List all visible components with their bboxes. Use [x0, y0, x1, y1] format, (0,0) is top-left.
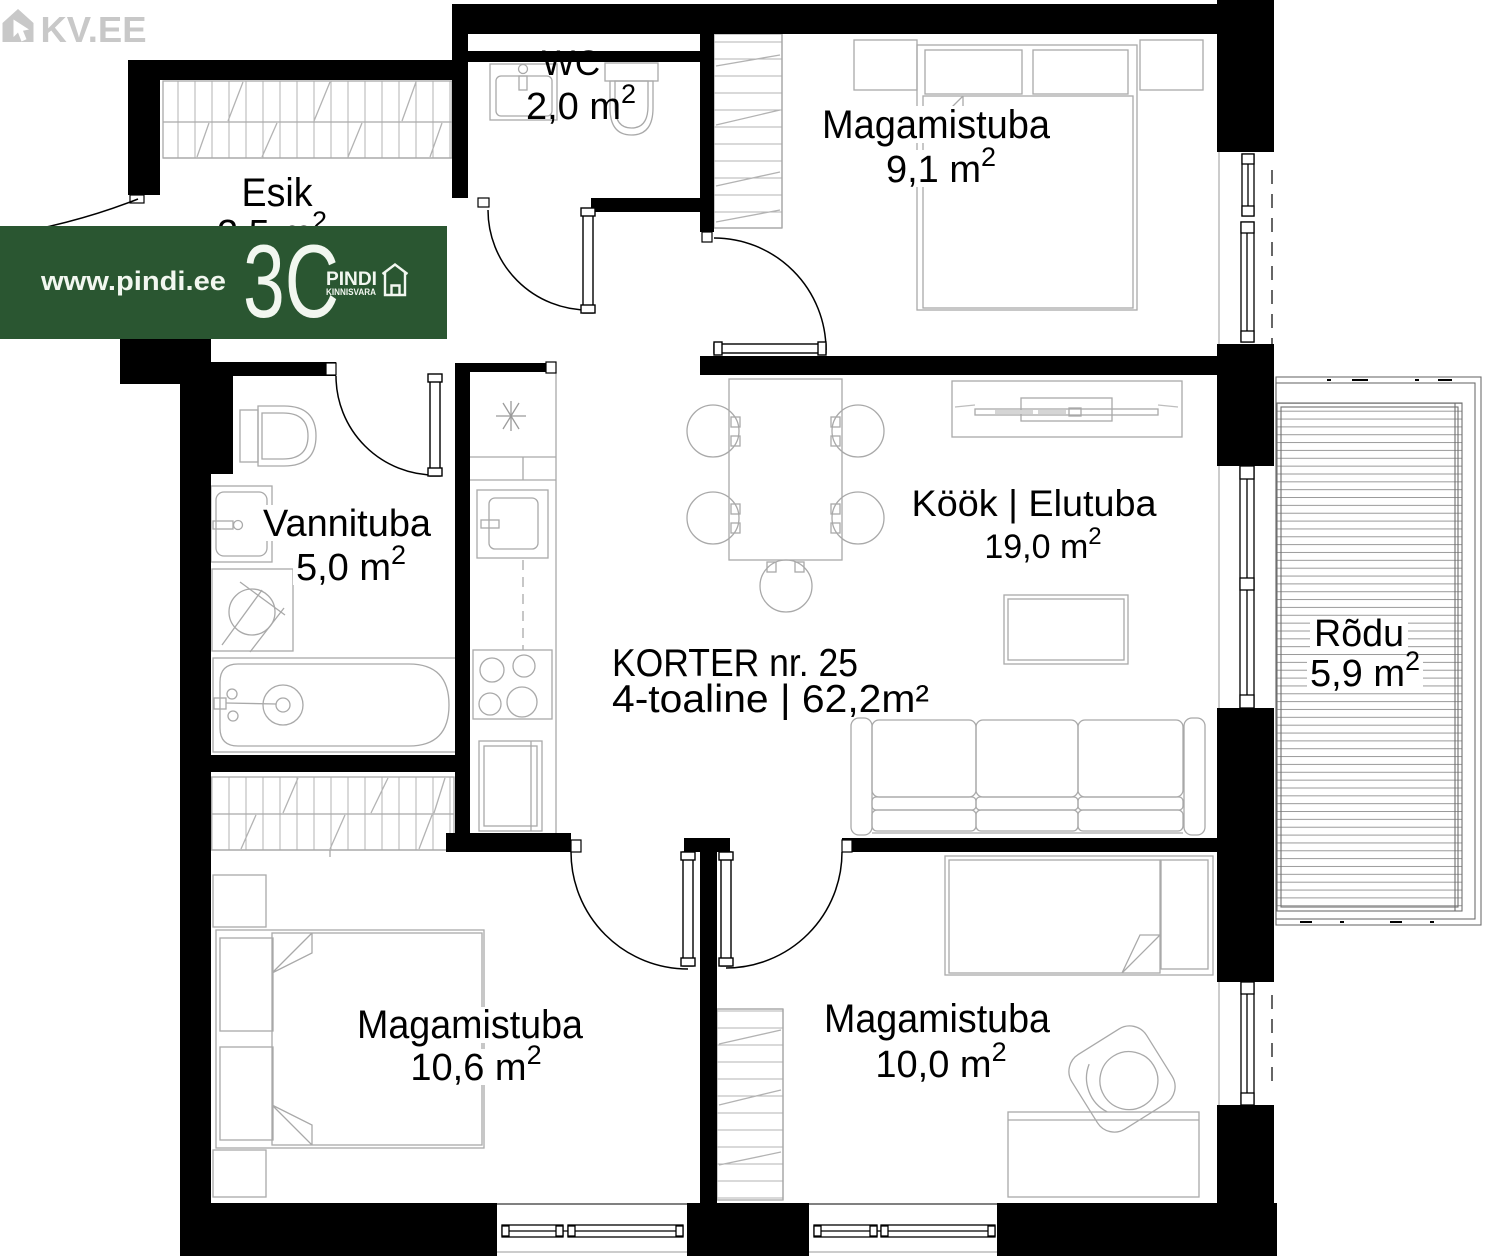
svg-text:Esik: Esik: [242, 171, 314, 215]
svg-text:www.pindi.ee: www.pindi.ee: [40, 266, 226, 296]
svg-text:10,6 m2: 10,6 m2: [410, 1040, 541, 1089]
svg-text:KV.EE: KV.EE: [41, 9, 147, 50]
svg-text:19,0 m2: 19,0 m2: [984, 523, 1101, 566]
svg-text:10,0 m2: 10,0 m2: [875, 1037, 1006, 1086]
svg-text:Magamistuba: Magamistuba: [357, 1003, 584, 1047]
svg-text:Magamistuba: Magamistuba: [822, 103, 1051, 147]
svg-text:9,1 m2: 9,1 m2: [886, 142, 996, 191]
svg-text:WC: WC: [542, 44, 600, 83]
svg-text:3C: 3C: [243, 224, 339, 340]
svg-text:Rõdu: Rõdu: [1314, 613, 1404, 655]
svg-text:KINNISVARA: KINNISVARA: [326, 287, 376, 298]
svg-text:Vannituba: Vannituba: [263, 503, 432, 545]
svg-text:Magamistuba: Magamistuba: [824, 997, 1051, 1041]
svg-text:Köök | Elutuba: Köök | Elutuba: [912, 483, 1157, 524]
svg-text:2,0 m2: 2,0 m2: [526, 79, 636, 128]
svg-text:5,0 m2: 5,0 m2: [296, 540, 406, 589]
svg-text:4-toaline | 62,2m²: 4-toaline | 62,2m²: [612, 678, 929, 721]
svg-text:5,9 m2: 5,9 m2: [1310, 646, 1420, 695]
